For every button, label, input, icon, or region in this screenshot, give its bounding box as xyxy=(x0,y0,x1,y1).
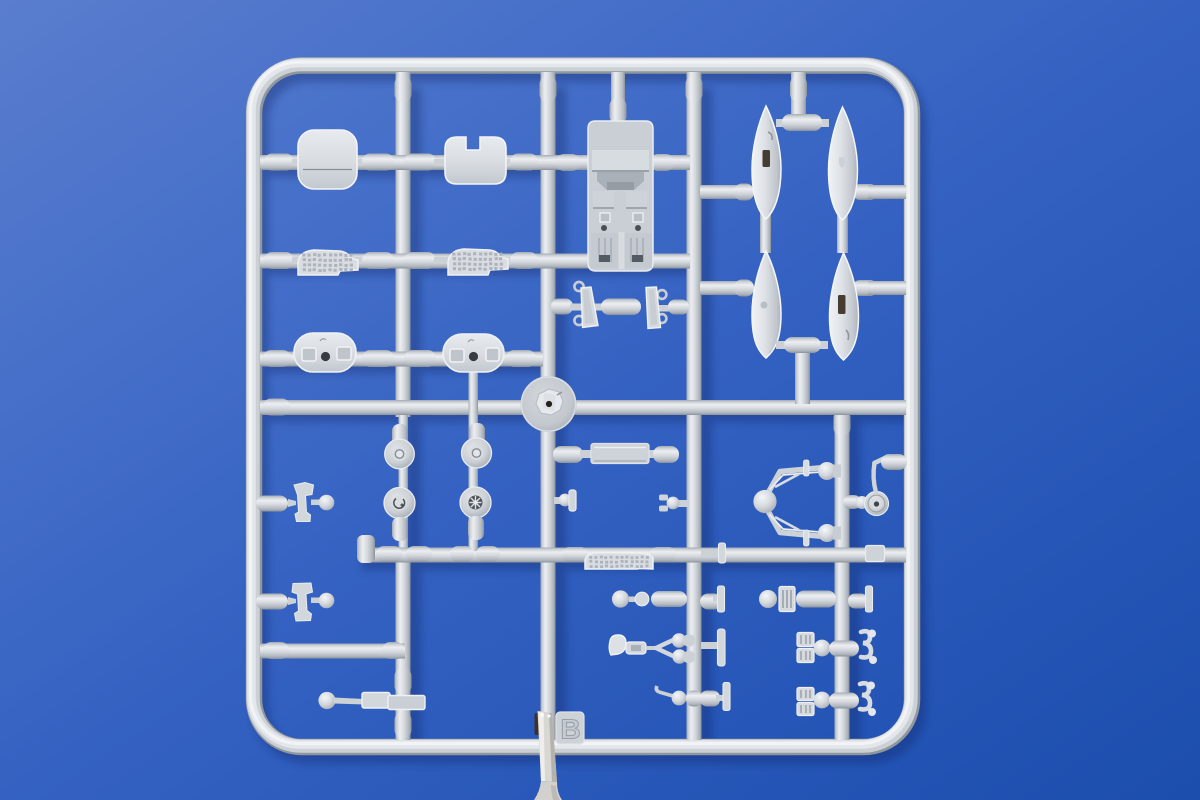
svg-text:B: B xyxy=(561,714,581,745)
